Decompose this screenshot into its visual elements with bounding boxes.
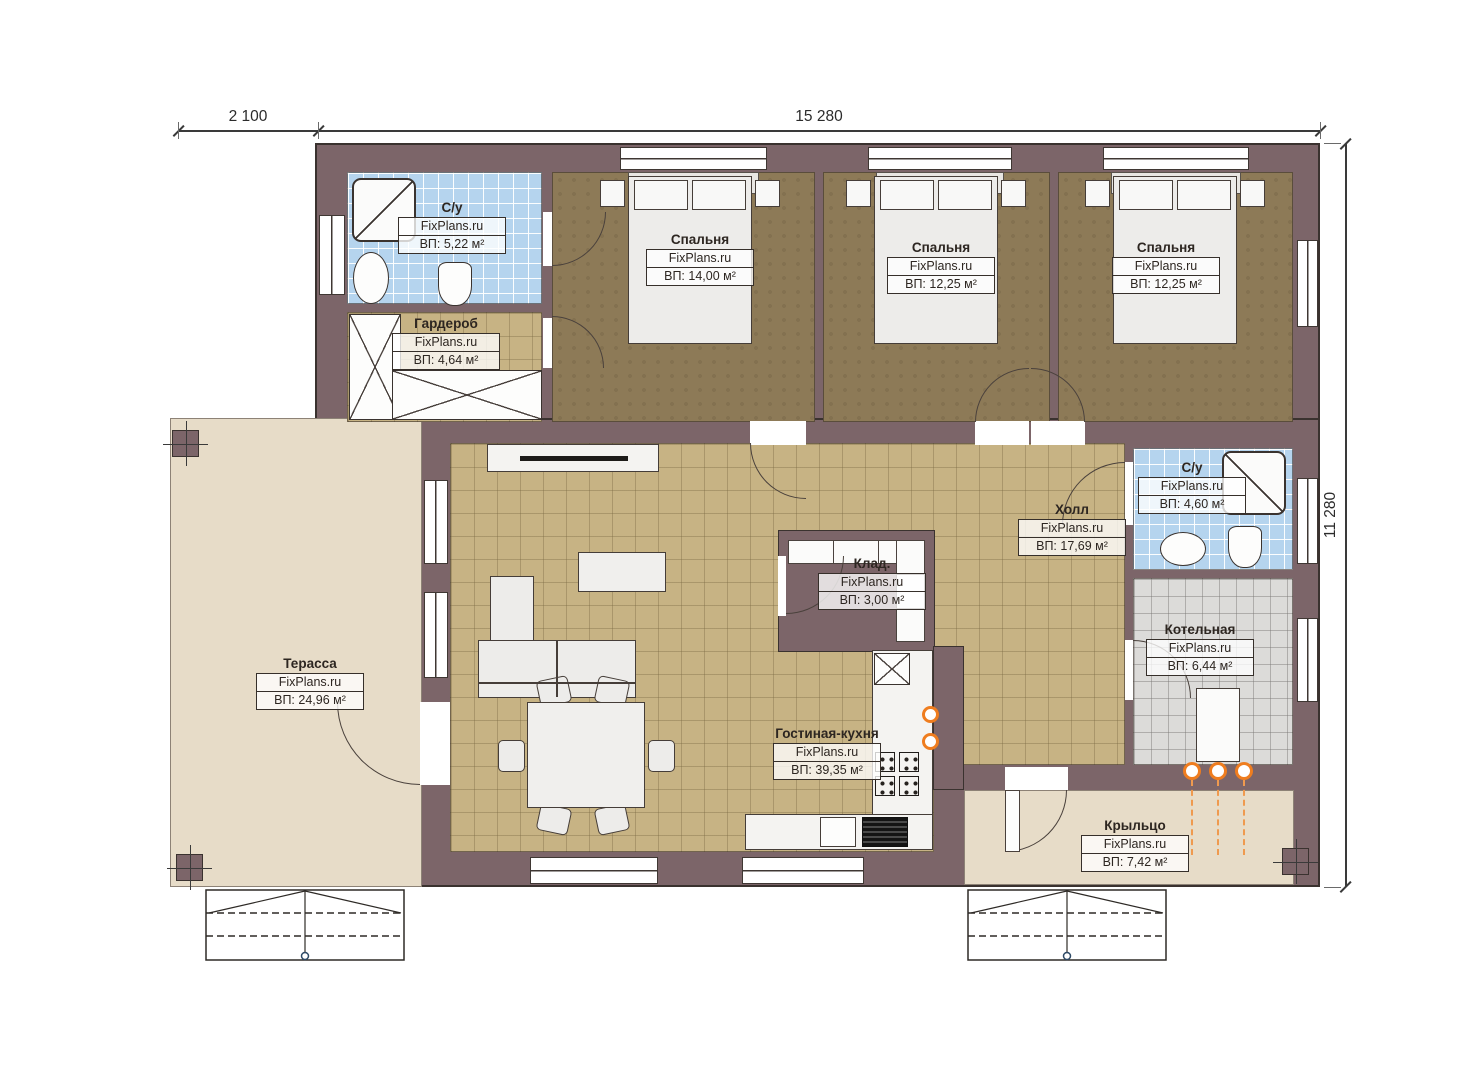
- brand-watermark: FixPlans.ru: [1112, 257, 1220, 276]
- boiler-icon: [1196, 688, 1240, 762]
- room-name: Крыльцо: [1081, 818, 1189, 833]
- brand-watermark: FixPlans.ru: [392, 333, 500, 352]
- room-area: ВП: 17,69 м²: [1018, 537, 1126, 556]
- sofa-seam: [478, 682, 636, 684]
- room-label-storage: Клад. FixPlans.ru ВП: 3,00 м²: [818, 556, 926, 610]
- brand-watermark: FixPlans.ru: [1018, 519, 1126, 538]
- room-name: С/у: [398, 200, 506, 215]
- dim-text-terrace: 2 100: [229, 108, 268, 126]
- terrace-steps: [205, 889, 405, 966]
- room-name: Котельная: [1146, 622, 1254, 637]
- bedroom2-window: [868, 147, 1012, 170]
- nightstand-icon: [846, 180, 871, 207]
- boiler-door-opening: [1125, 640, 1133, 700]
- bath1-door-opening: [543, 212, 552, 266]
- dim-extension: [178, 122, 179, 139]
- room-name: Спальня: [646, 232, 754, 247]
- pipe-line: [1191, 780, 1193, 855]
- brand-watermark: FixPlans.ru: [1081, 835, 1189, 854]
- pipe-line: [1217, 780, 1219, 855]
- nightstand-icon: [1240, 180, 1265, 207]
- brand-watermark: FixPlans.ru: [818, 573, 926, 592]
- sofa-seam: [556, 641, 558, 697]
- brand-watermark: FixPlans.ru: [1138, 477, 1246, 496]
- coffee-table: [578, 552, 666, 592]
- pillow-icon: [938, 180, 992, 210]
- dim-extension: [1320, 122, 1321, 139]
- sink-icon: [1160, 532, 1206, 566]
- terrace-post-top: [172, 430, 199, 457]
- boiler-window-right: [1297, 618, 1318, 702]
- nightstand-icon: [1001, 180, 1026, 207]
- steps-icon: [967, 889, 1167, 961]
- room-name: Спальня: [1112, 240, 1220, 255]
- dim-text-width: 15 280: [795, 108, 842, 126]
- room-area: ВП: 6,44 м²: [1146, 657, 1254, 676]
- dim-extension: [1324, 887, 1341, 888]
- pillow-icon: [1119, 180, 1173, 210]
- brand-watermark: FixPlans.ru: [256, 673, 364, 692]
- chair-icon: [498, 740, 525, 772]
- pillow-icon: [1177, 180, 1231, 210]
- bedroom1-window: [620, 147, 767, 170]
- dim-line-depth: [1345, 143, 1347, 887]
- tv-icon: [520, 456, 628, 461]
- room-label-living: Гостиная-кухня FixPlans.ru ВП: 39,35 м²: [773, 726, 881, 780]
- room-label-bedroom3: Спальня FixPlans.ru ВП: 12,25 м²: [1112, 240, 1220, 294]
- kitchen-sink-unit: [874, 653, 910, 685]
- pillow-icon: [634, 180, 688, 210]
- bedroom1-door-opening: [750, 421, 806, 445]
- room-area: ВП: 39,35 м²: [773, 761, 881, 780]
- room-name: Клад.: [818, 556, 926, 571]
- pipe-outlet-icon: [1209, 762, 1227, 780]
- dim-extension: [318, 122, 319, 139]
- brand-watermark: FixPlans.ru: [887, 257, 995, 276]
- room-area: ВП: 7,42 м²: [1081, 853, 1189, 872]
- room-label-boiler: Котельная FixPlans.ru ВП: 6,44 м²: [1146, 622, 1254, 676]
- porch-post: [1282, 848, 1309, 875]
- water-outlet-icon: [922, 706, 939, 723]
- pipe-line: [1243, 780, 1245, 855]
- hall-window-right: [1297, 478, 1318, 564]
- bedroom2-door-opening: [975, 421, 1029, 445]
- room-area: ВП: 24,96 м²: [256, 691, 364, 710]
- bedroom3-door-opening: [1031, 421, 1085, 445]
- room-label-bath2: С/у FixPlans.ru ВП: 4,60 м²: [1138, 460, 1246, 514]
- room-label-porch: Крыльцо FixPlans.ru ВП: 7,42 м²: [1081, 818, 1189, 872]
- room-name: Терасса: [256, 656, 364, 671]
- brand-watermark: FixPlans.ru: [398, 217, 506, 236]
- pillow-icon: [880, 180, 934, 210]
- room-label-bedroom1: Спальня FixPlans.ru ВП: 14,00 м²: [646, 232, 754, 286]
- pillow-icon: [692, 180, 746, 210]
- room-label-bedroom2: Спальня FixPlans.ru ВП: 12,25 м²: [887, 240, 995, 294]
- floor-plan: С/у FixPlans.ru ВП: 5,22 м² Гардероб Fix…: [0, 0, 1473, 1080]
- brand-watermark: FixPlans.ru: [773, 743, 881, 762]
- dish-rack-icon: [862, 817, 908, 847]
- living-window-left-2: [424, 592, 448, 678]
- bath1-window: [319, 215, 345, 295]
- room-name: Гардероб: [392, 316, 500, 331]
- storage-door-opening: [778, 556, 786, 616]
- dim-line-terrace: [178, 130, 318, 132]
- nightstand-icon: [755, 180, 780, 207]
- chair-icon: [648, 740, 675, 772]
- terrace-door-opening: [420, 702, 450, 785]
- room-area: ВП: 14,00 м²: [646, 267, 754, 286]
- room-area: ВП: 12,25 м²: [1112, 275, 1220, 294]
- room-label-wardrobe: Гардероб FixPlans.ru ВП: 4,64 м²: [392, 316, 500, 370]
- living-window-left-1: [424, 480, 448, 564]
- toilet-icon: [1228, 526, 1262, 568]
- dim-text-depth: 11 280: [1322, 492, 1340, 538]
- stove-icon: [899, 752, 919, 772]
- room-name: Гостиная-кухня: [773, 726, 881, 741]
- bath2-door-opening: [1125, 462, 1133, 525]
- brand-watermark: FixPlans.ru: [646, 249, 754, 268]
- bedroom3-window-right: [1297, 240, 1318, 327]
- toilet-icon: [438, 262, 472, 306]
- room-label-terrace: Терасса FixPlans.ru ВП: 24,96 м²: [256, 656, 364, 710]
- dim-extension: [1324, 143, 1341, 144]
- brand-watermark: FixPlans.ru: [1146, 639, 1254, 658]
- room-label-bath1: С/у FixPlans.ru ВП: 5,22 м²: [398, 200, 506, 254]
- living-window-bottom: [530, 857, 658, 884]
- room-area: ВП: 12,25 м²: [887, 275, 995, 294]
- water-outlet-icon: [922, 733, 939, 750]
- porch-door-opening: [1005, 767, 1068, 790]
- nightstand-icon: [1085, 180, 1110, 207]
- room-name: Холл: [1018, 502, 1126, 517]
- sink-icon: [353, 252, 389, 304]
- bedroom3-window: [1103, 147, 1249, 170]
- room-area: ВП: 4,64 м²: [392, 351, 500, 370]
- kitchen-sink-icon: [820, 817, 856, 847]
- steps-icon: [205, 889, 405, 961]
- pipe-outlet-icon: [1183, 762, 1201, 780]
- kitchen-window-bottom: [742, 857, 864, 884]
- porch-door-leaf: [1005, 790, 1020, 852]
- stove-icon: [899, 776, 919, 796]
- room-area: ВП: 5,22 м²: [398, 235, 506, 254]
- room-area: ВП: 3,00 м²: [818, 591, 926, 610]
- room-label-hall: Холл FixPlans.ru ВП: 17,69 м²: [1018, 502, 1126, 556]
- dim-line-width: [318, 130, 1320, 132]
- terrace-floor: [170, 418, 422, 887]
- room-name: Спальня: [887, 240, 995, 255]
- room-area: ВП: 4,60 м²: [1138, 495, 1246, 514]
- terrace-post-bottom: [176, 854, 203, 881]
- pipe-outlet-icon: [1235, 762, 1253, 780]
- wardrobe-cabinet-wide: [392, 370, 542, 420]
- porch-steps: [967, 889, 1167, 966]
- dining-table: [527, 702, 645, 808]
- room-name: С/у: [1138, 460, 1246, 475]
- wardrobe-door-opening: [543, 318, 552, 368]
- nightstand-icon: [600, 180, 625, 207]
